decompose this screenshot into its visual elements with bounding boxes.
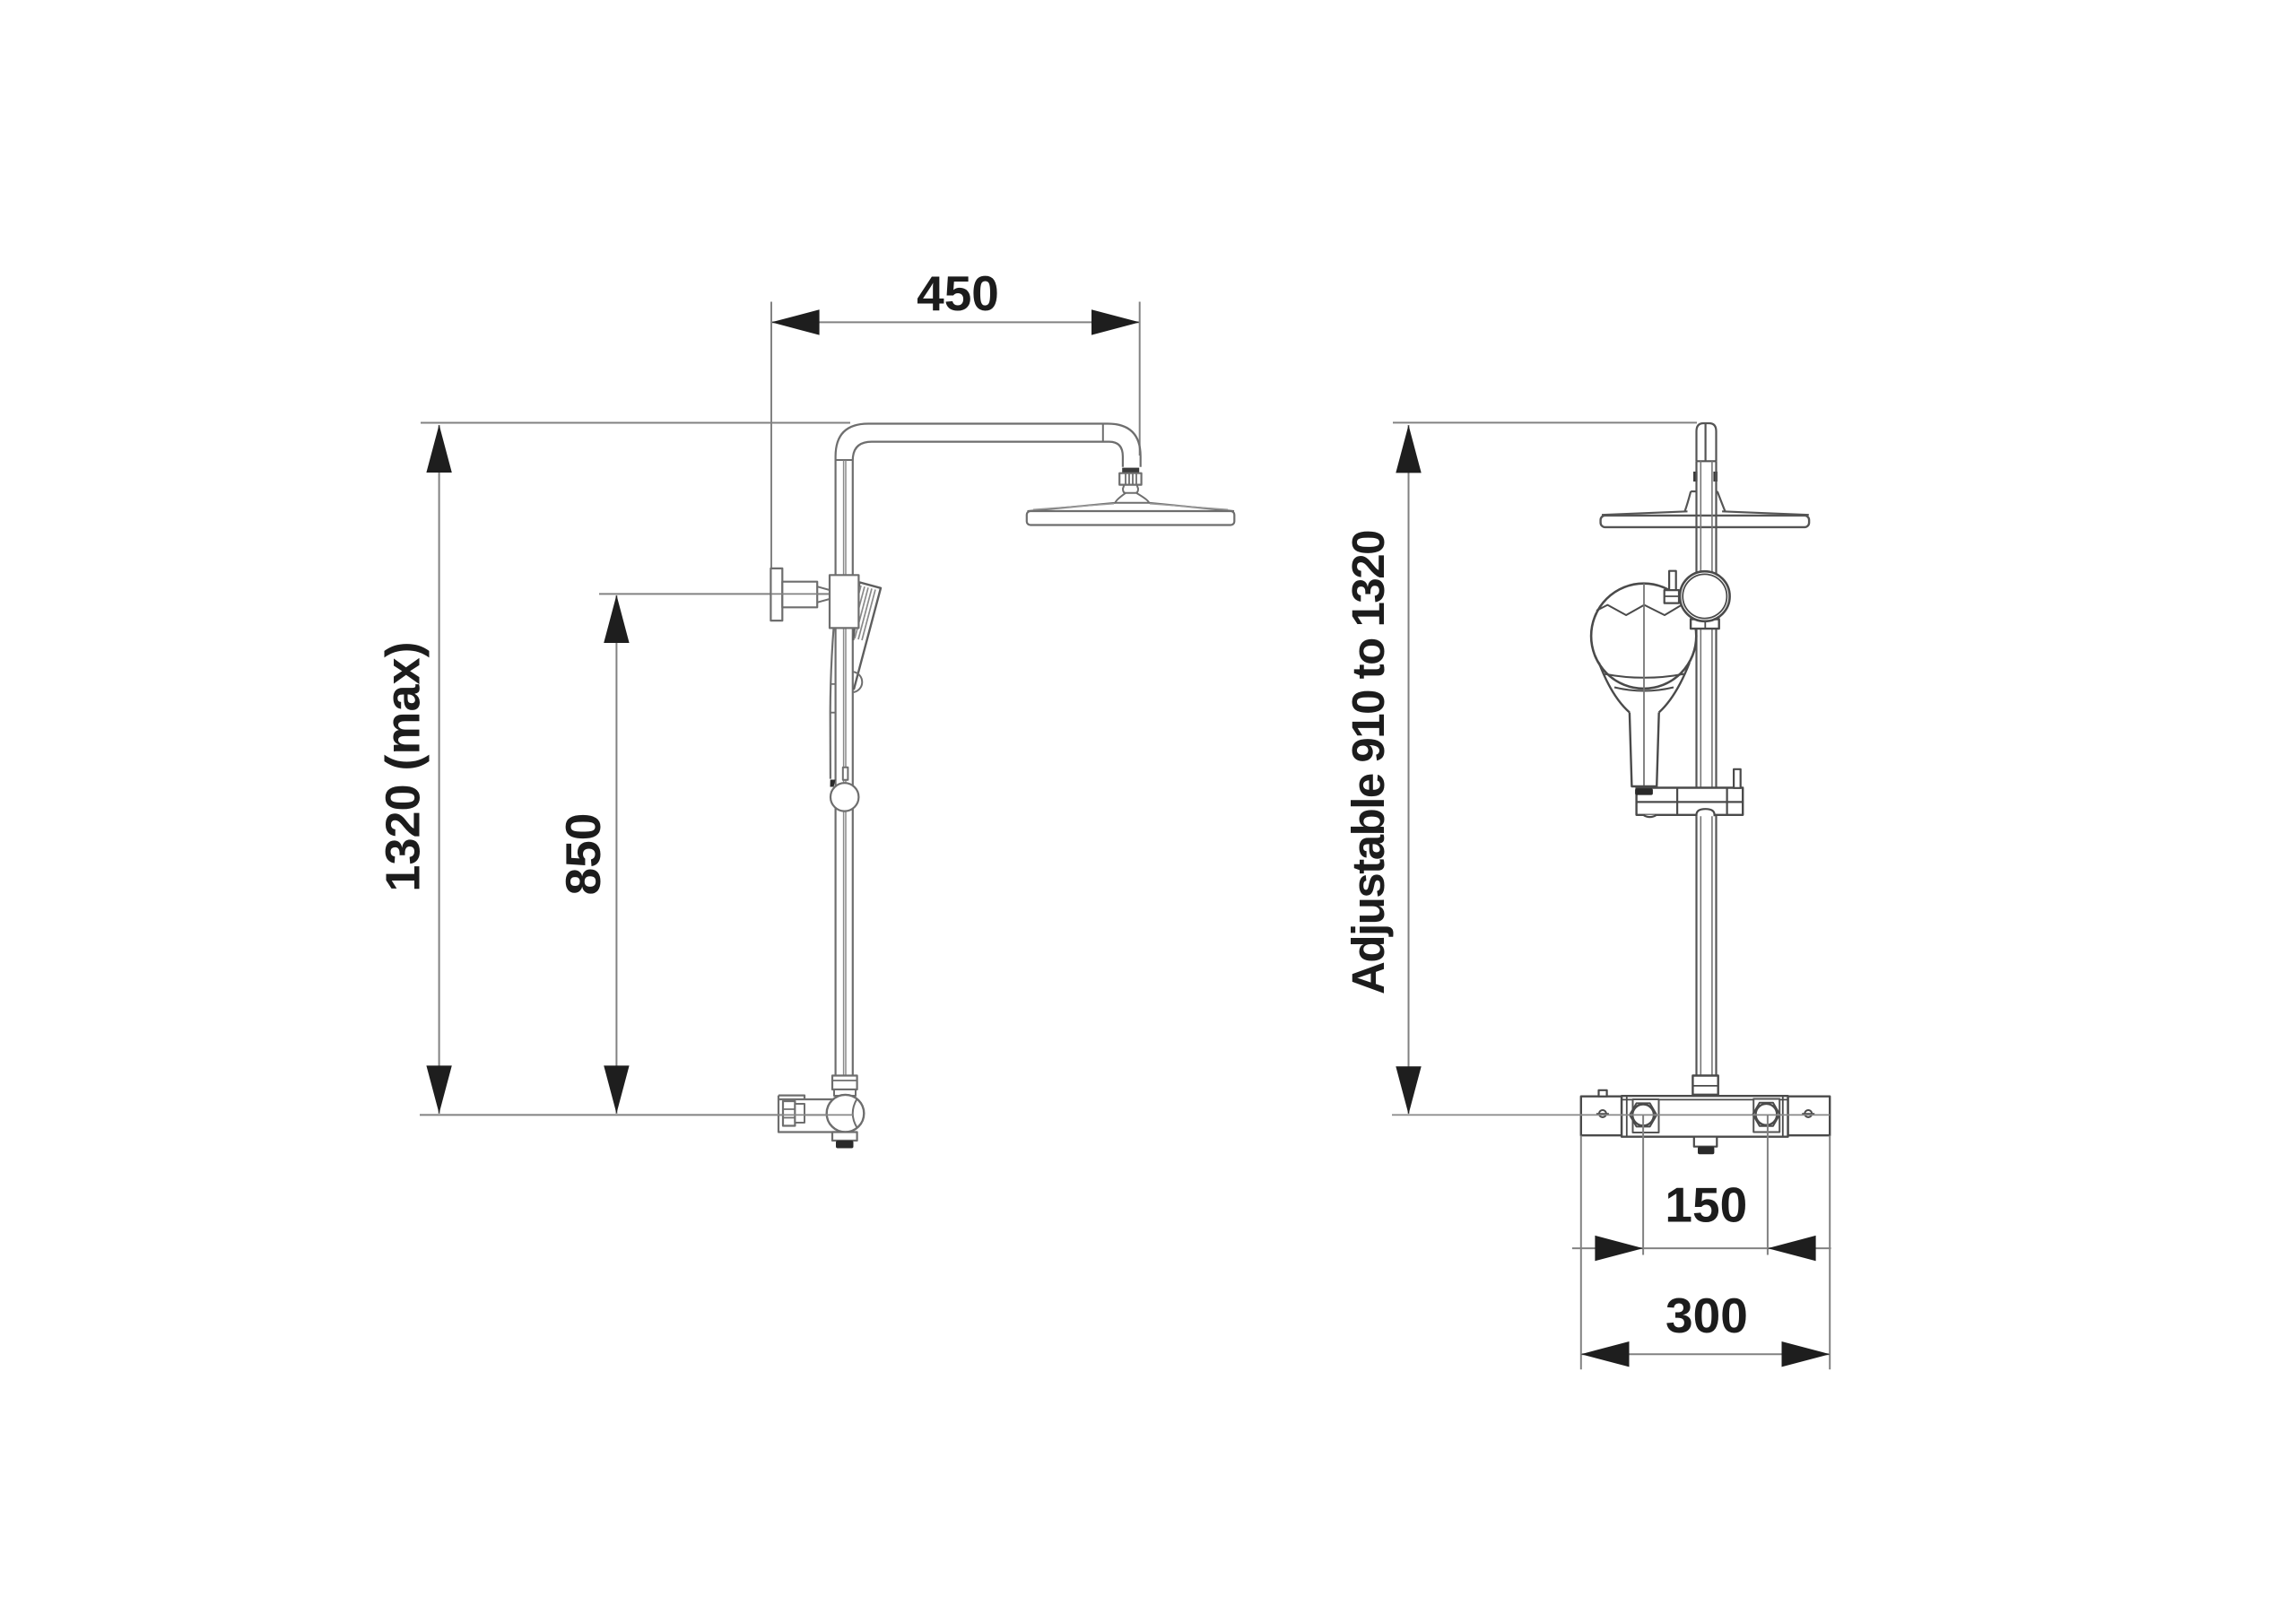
svg-text:850: 850 — [555, 813, 611, 896]
svg-text:450: 450 — [917, 265, 999, 321]
svg-text:Adjustable 910 to 1320: Adjustable 910 to 1320 — [1343, 531, 1394, 994]
svg-text:300: 300 — [1665, 1288, 1748, 1343]
svg-text:150: 150 — [1665, 1177, 1747, 1233]
svg-text:1320 (max): 1320 (max) — [376, 641, 430, 891]
